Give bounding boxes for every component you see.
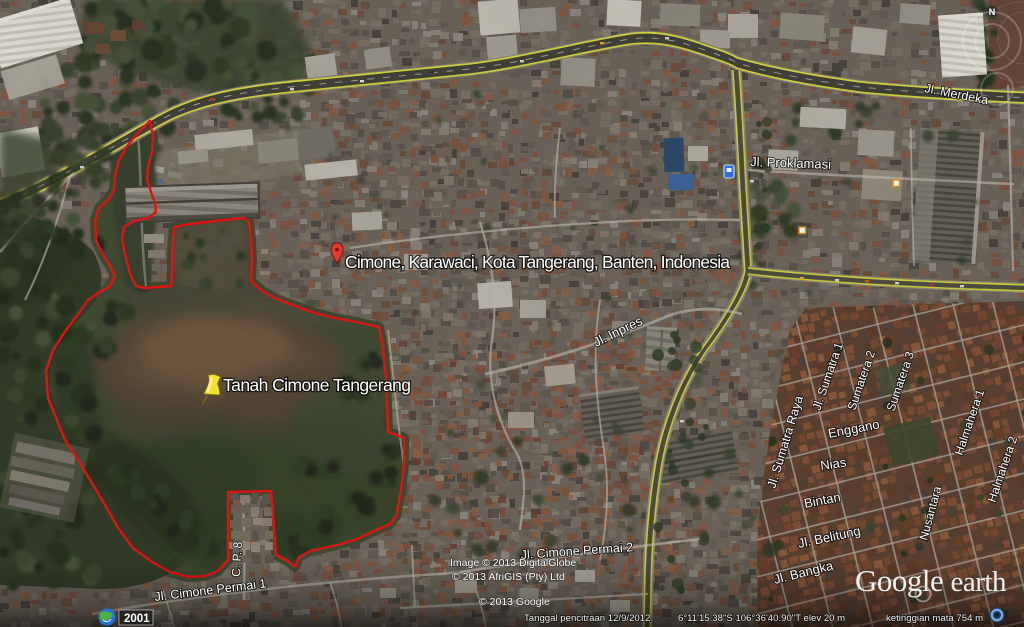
svg-text:Cimone, Karawaci, Kota Tangera: Cimone, Karawaci, Kota Tangerang, Banten… bbox=[345, 252, 730, 272]
svg-text:Tanggal pencitraan 12/9/2012: Tanggal pencitraan 12/9/2012 bbox=[524, 613, 650, 624]
svg-text:© 2013 AfriGIS (Pty) Ltd: © 2013 AfriGIS (Pty) Ltd bbox=[452, 571, 565, 583]
svg-text:Jl. Proklamasi: Jl. Proklamasi bbox=[750, 154, 831, 172]
svg-text:Image © 2013 DigitalGlobe: Image © 2013 DigitalGlobe bbox=[450, 557, 576, 569]
svg-text:C. P. 8: C. P. 8 bbox=[229, 541, 245, 577]
svg-text:© 2013 Google: © 2013 Google bbox=[479, 596, 550, 608]
svg-text:Tanah Cimone Tangerang: Tanah Cimone Tangerang bbox=[223, 375, 411, 395]
svg-text:6°11'15.38"S 106°36'40.90"T: 6°11'15.38"S 106°36'40.90"T elev 20 m bbox=[678, 613, 845, 624]
svg-text:ketinggian mata 754 m: ketinggian mata 754 m bbox=[886, 613, 983, 624]
svg-text:2001: 2001 bbox=[124, 613, 150, 625]
